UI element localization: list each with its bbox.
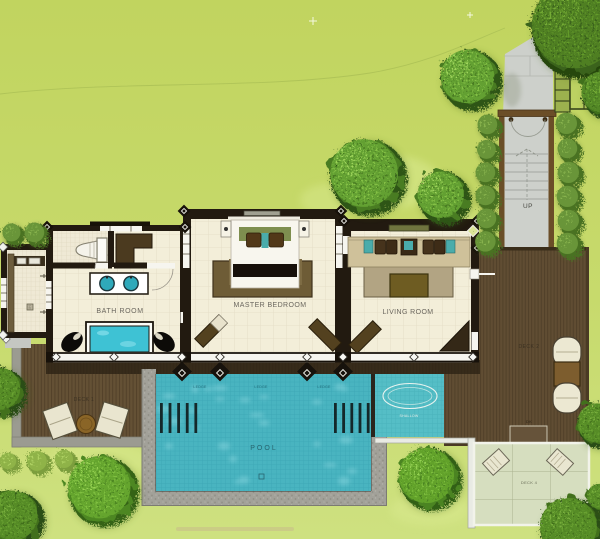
svg-text:DK: DK (526, 419, 532, 424)
svg-text:POOL: POOL (250, 445, 277, 452)
svg-text:UP: UP (523, 203, 533, 210)
svg-text:LIVING ROOM: LIVING ROOM (382, 309, 433, 316)
svg-text:LEDGE: LEDGE (193, 385, 207, 389)
svg-text:SHALLOW: SHALLOW (400, 414, 419, 418)
svg-text:DECK 4: DECK 4 (521, 480, 538, 485)
svg-text:MASTER BEDROOM: MASTER BEDROOM (234, 302, 307, 309)
svg-text:DECK 1: DECK 1 (74, 397, 94, 403)
svg-text:LEDGE: LEDGE (317, 385, 331, 389)
svg-text:DECK 2: DECK 2 (518, 344, 539, 350)
svg-text:BH: BH (27, 305, 32, 311)
svg-text:LEDGE: LEDGE (254, 385, 268, 389)
svg-text:BATH ROOM: BATH ROOM (96, 308, 143, 315)
